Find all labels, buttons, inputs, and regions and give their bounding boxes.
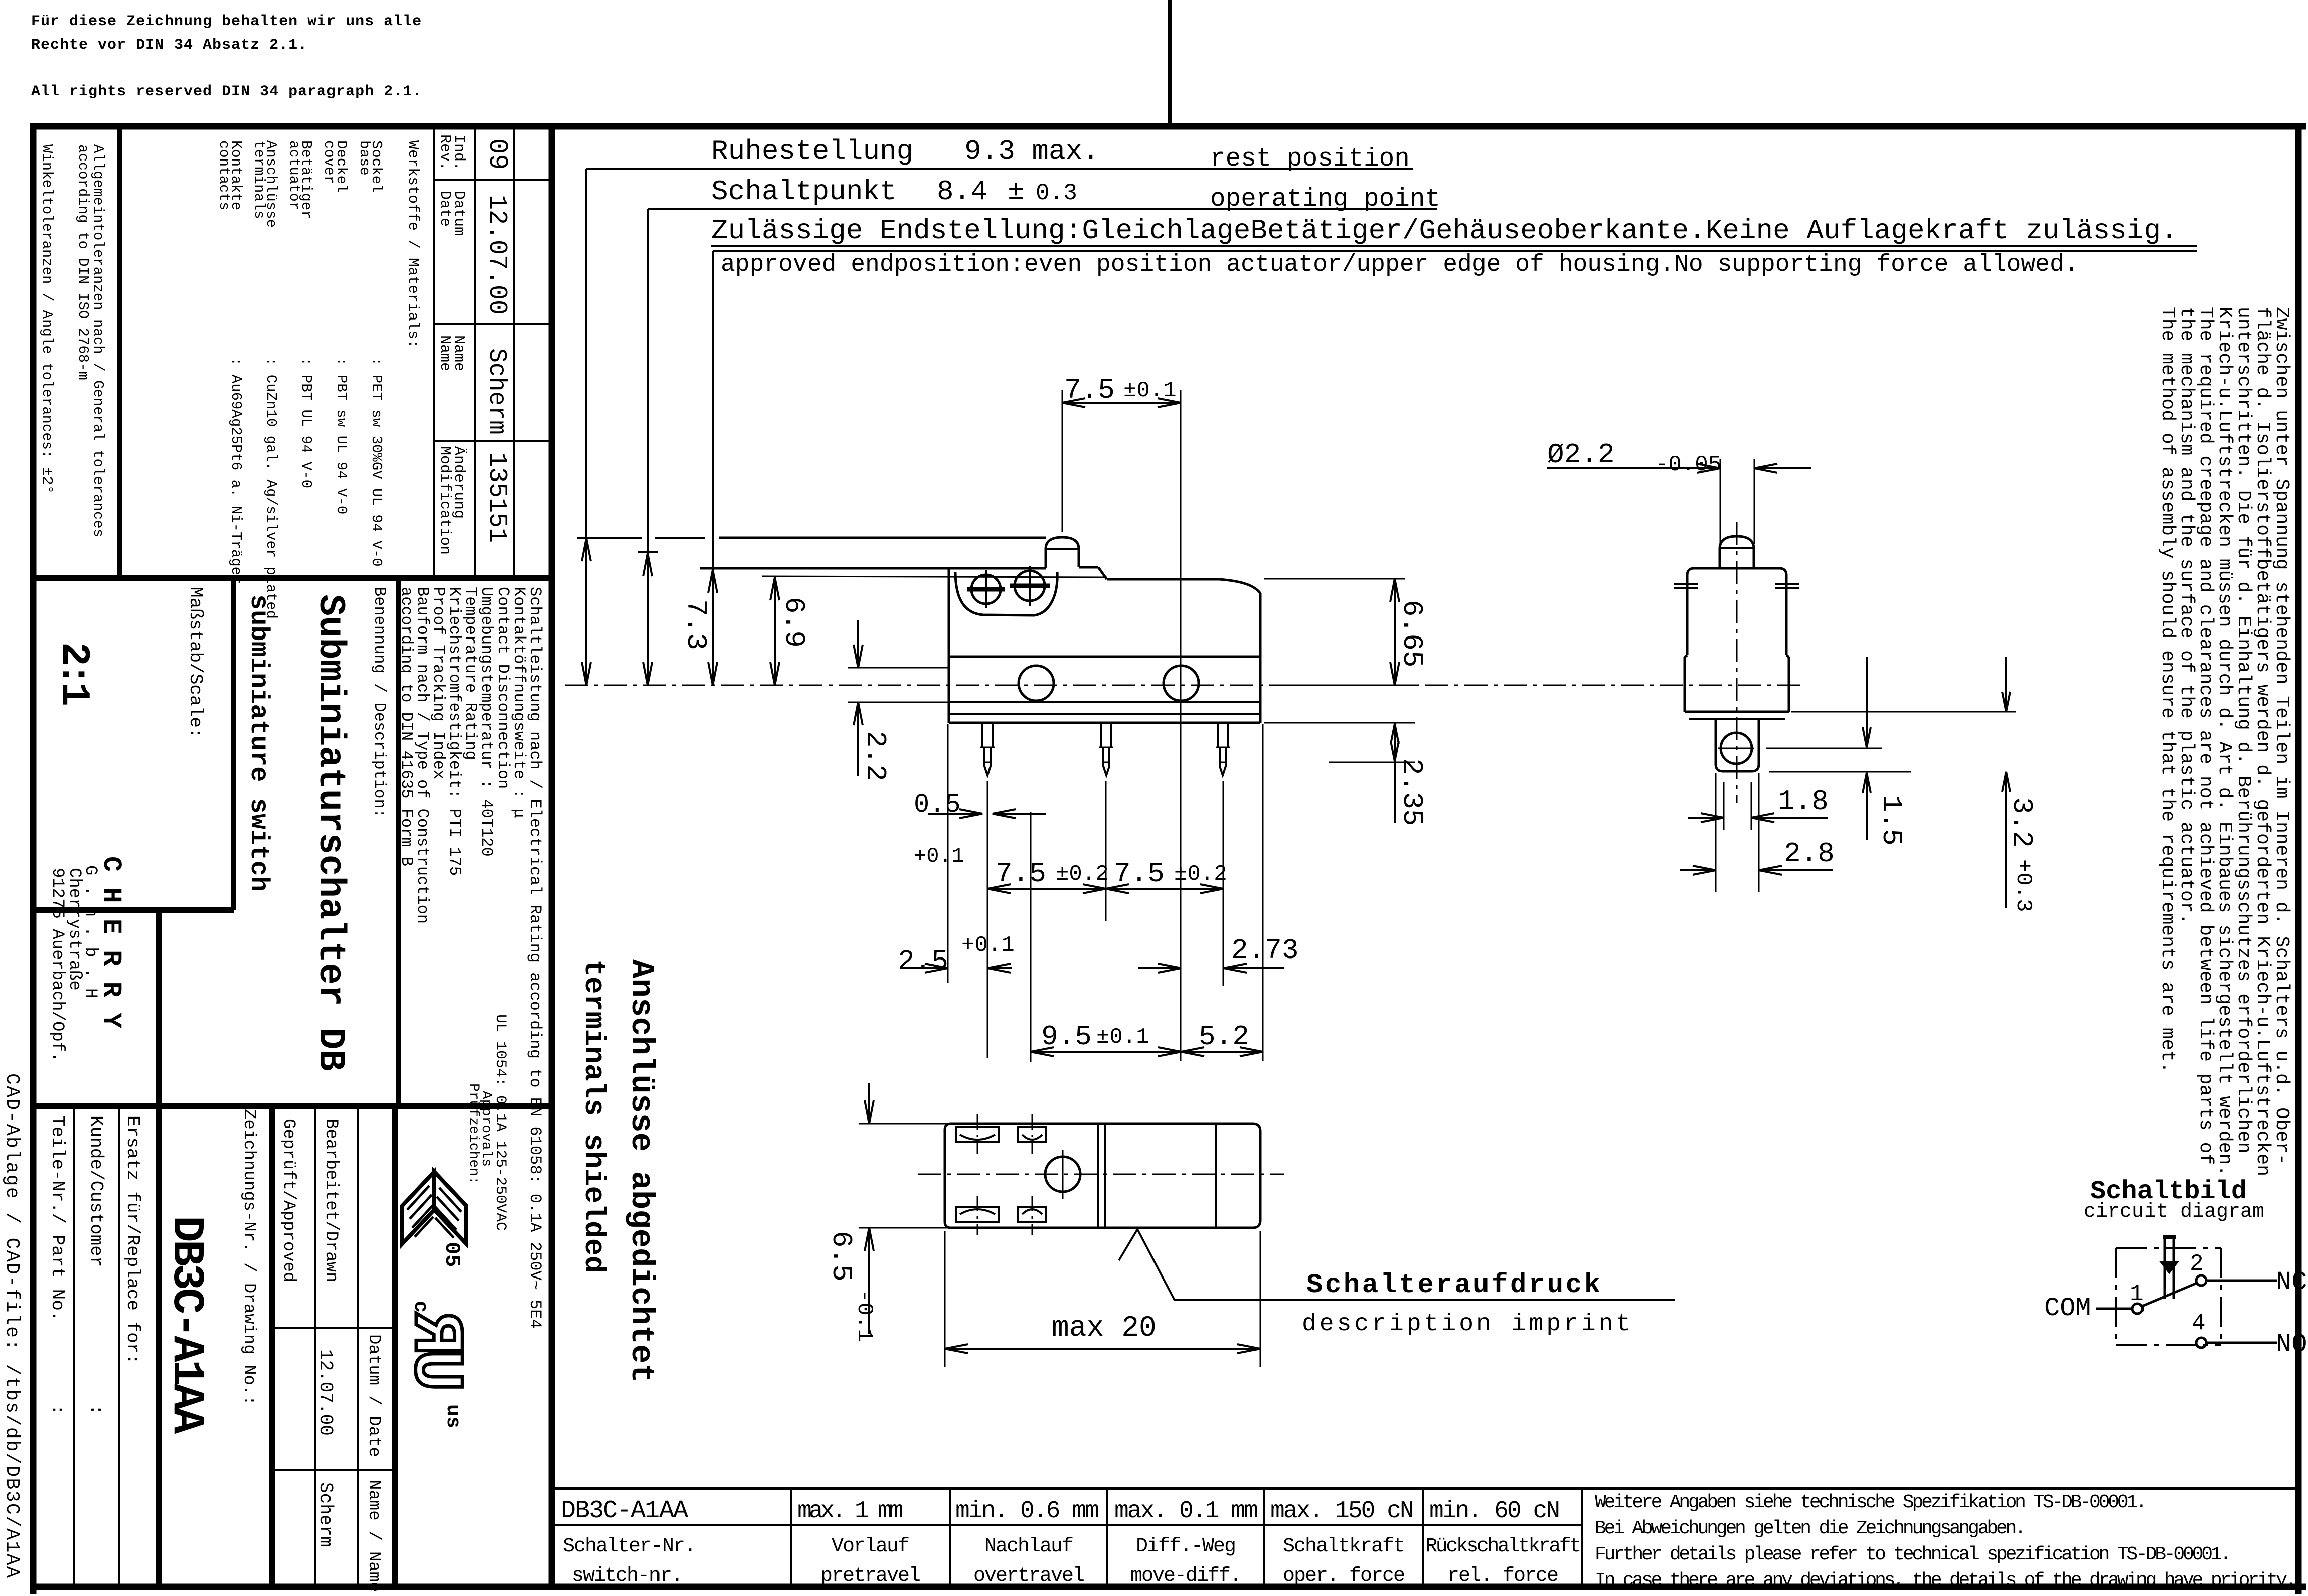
svg-text:max. 150 cN: max. 150 cN (1270, 1498, 1413, 1525)
svg-text:7.5: 7.5 (1064, 374, 1115, 406)
svg-text:Name: Name (436, 335, 453, 371)
svg-text:Winkeltoleranzen / Angle toler: Winkeltoleranzen / Angle tolerances: ±2° (39, 144, 55, 494)
svg-text:Rev.: Rev. (436, 134, 453, 171)
svg-text:7.5: 7.5 (996, 858, 1046, 890)
svg-text:Werkstoffe / Materials:: Werkstoffe / Materials: (404, 140, 421, 348)
svg-text:actuator: actuator (286, 140, 302, 210)
svg-text:Maßstab/Scale:: Maßstab/Scale: (185, 587, 206, 738)
svg-text:: Au69Ag25Pt6 a. Ni-Träger: : Au69Ag25Pt6 a. Ni-Träger (228, 357, 244, 584)
svg-text:oper. force: oper. force (1283, 1565, 1404, 1587)
svg-text:Date: Date (436, 191, 453, 227)
svg-text:max. 0.1 mm: max. 0.1 mm (1114, 1498, 1257, 1525)
svg-text:Ruhestellung: Ruhestellung (711, 135, 913, 168)
svg-text:2: 2 (2190, 1251, 2204, 1277)
svg-text:Subminiaturschalter DB: Subminiaturschalter DB (310, 594, 351, 1071)
svg-text:move-diff.: move-diff. (1130, 1565, 1241, 1587)
svg-text:+0.3: +0.3 (2011, 859, 2036, 912)
svg-text:6.5: 6.5 (825, 1231, 857, 1282)
svg-text:CAD-Ablage / CAD-file: /tbs/db: CAD-Ablage / CAD-file: /tbs/db/DB3C/A1AA (1, 1073, 23, 1579)
svg-text:Geprüft/Approved: Geprüft/Approved (279, 1119, 298, 1282)
svg-text:Schalteraufdruck: Schalteraufdruck (1306, 1270, 1602, 1301)
svg-text:c: c (409, 1301, 431, 1313)
svg-text:description imprint: description imprint (1302, 1311, 1633, 1338)
svg-text:2.73: 2.73 (1231, 934, 1298, 967)
svg-text:12.07.00: 12.07.00 (482, 195, 511, 315)
svg-text:0.5: 0.5 (914, 790, 961, 820)
svg-text:the mechanism and the surface: the mechanism and the surface of the pla… (2176, 307, 2197, 924)
svg-text:±: ± (1008, 176, 1025, 208)
svg-text:12.07.00: 12.07.00 (315, 1349, 336, 1436)
svg-text:: PBT UL 94 V-0: : PBT UL 94 V-0 (298, 357, 314, 488)
svg-text:4: 4 (2192, 1310, 2206, 1336)
svg-text:Scherm: Scherm (315, 1482, 336, 1547)
svg-text:0.3: 0.3 (1036, 180, 1077, 206)
svg-text:2.5: 2.5 (898, 945, 948, 978)
svg-text:switch-nr.: switch-nr. (572, 1565, 682, 1587)
svg-text:min. 60 cN: min. 60 cN (1429, 1498, 1559, 1525)
svg-text:Vorlauf: Vorlauf (832, 1535, 909, 1558)
svg-text:+0.1: +0.1 (961, 933, 1015, 958)
svg-text:pretravel: pretravel (820, 1565, 920, 1587)
svg-text:91275 Auerbach/Opf.: 91275 Auerbach/Opf. (48, 868, 67, 1062)
svg-text:Cherrystraße: Cherrystraße (65, 868, 84, 991)
svg-text:5.2: 5.2 (1199, 1021, 1249, 1053)
svg-text:9.3 max.: 9.3 max. (964, 135, 1099, 168)
svg-text:-0.1: -0.1 (852, 1289, 877, 1342)
svg-text:Further details please refer t: Further details please refer to technica… (1595, 1544, 2229, 1565)
svg-text:9.5: 9.5 (1041, 1021, 1092, 1053)
svg-text:COM: COM (2044, 1294, 2091, 1323)
svg-text:3.2: 3.2 (2006, 797, 2038, 848)
svg-text:2.35: 2.35 (1396, 758, 1428, 826)
svg-text:Zeichnungs-Nr. / Drawing No.:: Zeichnungs-Nr. / Drawing No.: (239, 1109, 258, 1406)
svg-text:Rückschaltkraft: Rückschaltkraft (1425, 1535, 1580, 1558)
svg-text:us: us (441, 1404, 464, 1428)
svg-text:Kriech-u.Luftstrecken müssen d: Kriech-u.Luftstrecken müssen durch d. Ar… (2214, 307, 2235, 1176)
svg-text:Bearbeitet/Drawn: Bearbeitet/Drawn (321, 1119, 341, 1282)
svg-text:Kunde/Customer: Kunde/Customer (86, 1115, 106, 1267)
svg-text:8.4: 8.4 (937, 176, 987, 208)
svg-text:C H E R R Y: C H E R R Y (96, 856, 126, 1029)
svg-text:Weitere Angaben siehe technisc: Weitere Angaben siehe technische Spezifi… (1595, 1492, 2146, 1513)
svg-text:7.5: 7.5 (1114, 858, 1165, 890)
svg-text:±0.1: ±0.1 (1096, 1025, 1149, 1050)
svg-text:The required creepage and clea: The required creepage and clearances are… (2195, 307, 2216, 1165)
svg-text:: PBT sw UL 94 V-0: : PBT sw UL 94 V-0 (333, 357, 350, 514)
svg-text:Name / Name: Name / Name (364, 1480, 383, 1592)
svg-text:All rights reserved DIN 34 par: All rights reserved DIN 34 paragraph 2.1… (31, 83, 422, 100)
svg-text:ЯU: ЯU (395, 1313, 474, 1387)
svg-text:2.2: 2.2 (859, 731, 891, 781)
svg-text:1: 1 (2130, 1281, 2144, 1307)
svg-text:fläche d. Isolierstoffbetätige: fläche d. Isolierstoffbetätigers werden … (2252, 307, 2273, 1176)
svg-text:Modification: Modification (436, 446, 453, 555)
svg-text:Diff.-Weg: Diff.-Weg (1136, 1535, 1235, 1558)
svg-text:according to DIN ISO 2768-m: according to DIN ISO 2768-m (75, 144, 91, 380)
svg-text::: : (86, 1404, 106, 1415)
svg-text:In case there are any deviatio: In case there are any deviations, the de… (1595, 1570, 2294, 1591)
svg-text:base: base (356, 140, 373, 176)
svg-text:Zulässige Endstellung:Gleichla: Zulässige Endstellung:GleichlageBetätige… (711, 215, 2178, 247)
svg-text:Anschlüsse abgedichtet: Anschlüsse abgedichtet (623, 959, 659, 1383)
svg-text:rel. force: rel. force (1447, 1565, 1558, 1587)
svg-text:-0.05: -0.05 (1655, 452, 1721, 477)
svg-text:Für diese Zeichnung behalten w: Für diese Zeichnung behalten wir uns all… (31, 13, 422, 30)
svg-text:: PET sw 30%GV UL 94 V-0: : PET sw 30%GV UL 94 V-0 (368, 357, 385, 567)
svg-text:The method of assembly should: The method of assembly should ensure tha… (2157, 307, 2178, 1073)
svg-text:2.8: 2.8 (1784, 838, 1835, 870)
svg-text:DB3C-A1AA: DB3C-A1AA (161, 1216, 211, 1434)
svg-text:05: 05 (440, 1242, 464, 1267)
svg-text:: CuZn10 gal. Ag/silver plate: : CuZn10 gal. Ag/silver plated (263, 357, 279, 619)
svg-text:09: 09 (482, 138, 512, 170)
svg-text:Schaltkraft: Schaltkraft (1283, 1535, 1404, 1558)
svg-text:Approvals: Approvals (478, 1091, 494, 1167)
svg-text:Scherm: Scherm (483, 348, 510, 435)
svg-text:contacts: contacts (216, 140, 232, 210)
svg-text:subminiature switch: subminiature switch (244, 594, 273, 892)
svg-text::: : (47, 1404, 68, 1415)
svg-text:Nachlauf: Nachlauf (984, 1535, 1073, 1558)
svg-text:Rechte vor DIN 34 Absatz 2.1.: Rechte vor DIN 34 Absatz 2.1. (31, 37, 307, 54)
svg-text:2:1: 2:1 (51, 642, 96, 705)
svg-text:Schalter-Nr.: Schalter-Nr. (563, 1535, 695, 1558)
svg-text:Bei Abweichungen gelten die Ze: Bei Abweichungen gelten die Zeichnungsan… (1595, 1518, 2024, 1539)
svg-text:DB3C-A1AA: DB3C-A1AA (561, 1497, 688, 1525)
svg-text:Schaltpunkt: Schaltpunkt (711, 176, 897, 208)
svg-text:6.9: 6.9 (778, 597, 810, 648)
svg-text:Benennung / Description:: Benennung / Description: (370, 587, 389, 818)
svg-text:terminals shielded: terminals shielded (577, 959, 609, 1273)
svg-text:+0.1: +0.1 (914, 844, 964, 868)
svg-text:max 20: max 20 (1052, 1312, 1157, 1345)
svg-text:overtravel: overtravel (973, 1565, 1084, 1587)
svg-text:terminals: terminals (251, 140, 267, 219)
svg-text:NC: NC (2276, 1267, 2307, 1297)
svg-text:1.5: 1.5 (1875, 795, 1907, 846)
svg-text:7.3: 7.3 (680, 599, 712, 650)
svg-text:6.65: 6.65 (1396, 600, 1428, 667)
svg-text:Ersatz für/Replace for:: Ersatz für/Replace for: (122, 1115, 143, 1365)
svg-text:±0.1: ±0.1 (1123, 378, 1177, 403)
svg-text:135151: 135151 (482, 452, 511, 543)
svg-text:±0.2: ±0.2 (1174, 862, 1227, 887)
svg-text:Ø2.2: Ø2.2 (1547, 439, 1614, 471)
svg-text:cover: cover (321, 140, 338, 184)
svg-text:±0.2: ±0.2 (1056, 862, 1109, 887)
svg-text:Datum / Date: Datum / Date (364, 1334, 383, 1457)
svg-text:max. 1 mm: max. 1 mm (797, 1498, 902, 1525)
svg-text:unterschritten. Die für d. Ein: unterschritten. Die für d. Einhaltung d.… (2233, 307, 2254, 1153)
svg-text:min. 0.6 mm: min. 0.6 mm (955, 1498, 1098, 1525)
svg-text:Teile-Nr./ Part No.: Teile-Nr./ Part No. (47, 1115, 68, 1321)
svg-text:approved endposition:even posi: approved endposition:even position actua… (721, 251, 2079, 278)
svg-text:1.8: 1.8 (1778, 785, 1829, 818)
svg-text:Zwischen unter Spannung stehen: Zwischen unter Spannung stehenden Teilen… (2271, 307, 2292, 1165)
svg-text:circuit diagram: circuit diagram (2084, 1201, 2264, 1223)
svg-text:Allgemeintoleranzen nach / Gen: Allgemeintoleranzen nach / General toler… (90, 144, 106, 537)
svg-text:according to DIN 41635 Form B: according to DIN 41635 Form B (397, 587, 416, 866)
svg-text:NO: NO (2276, 1330, 2307, 1359)
